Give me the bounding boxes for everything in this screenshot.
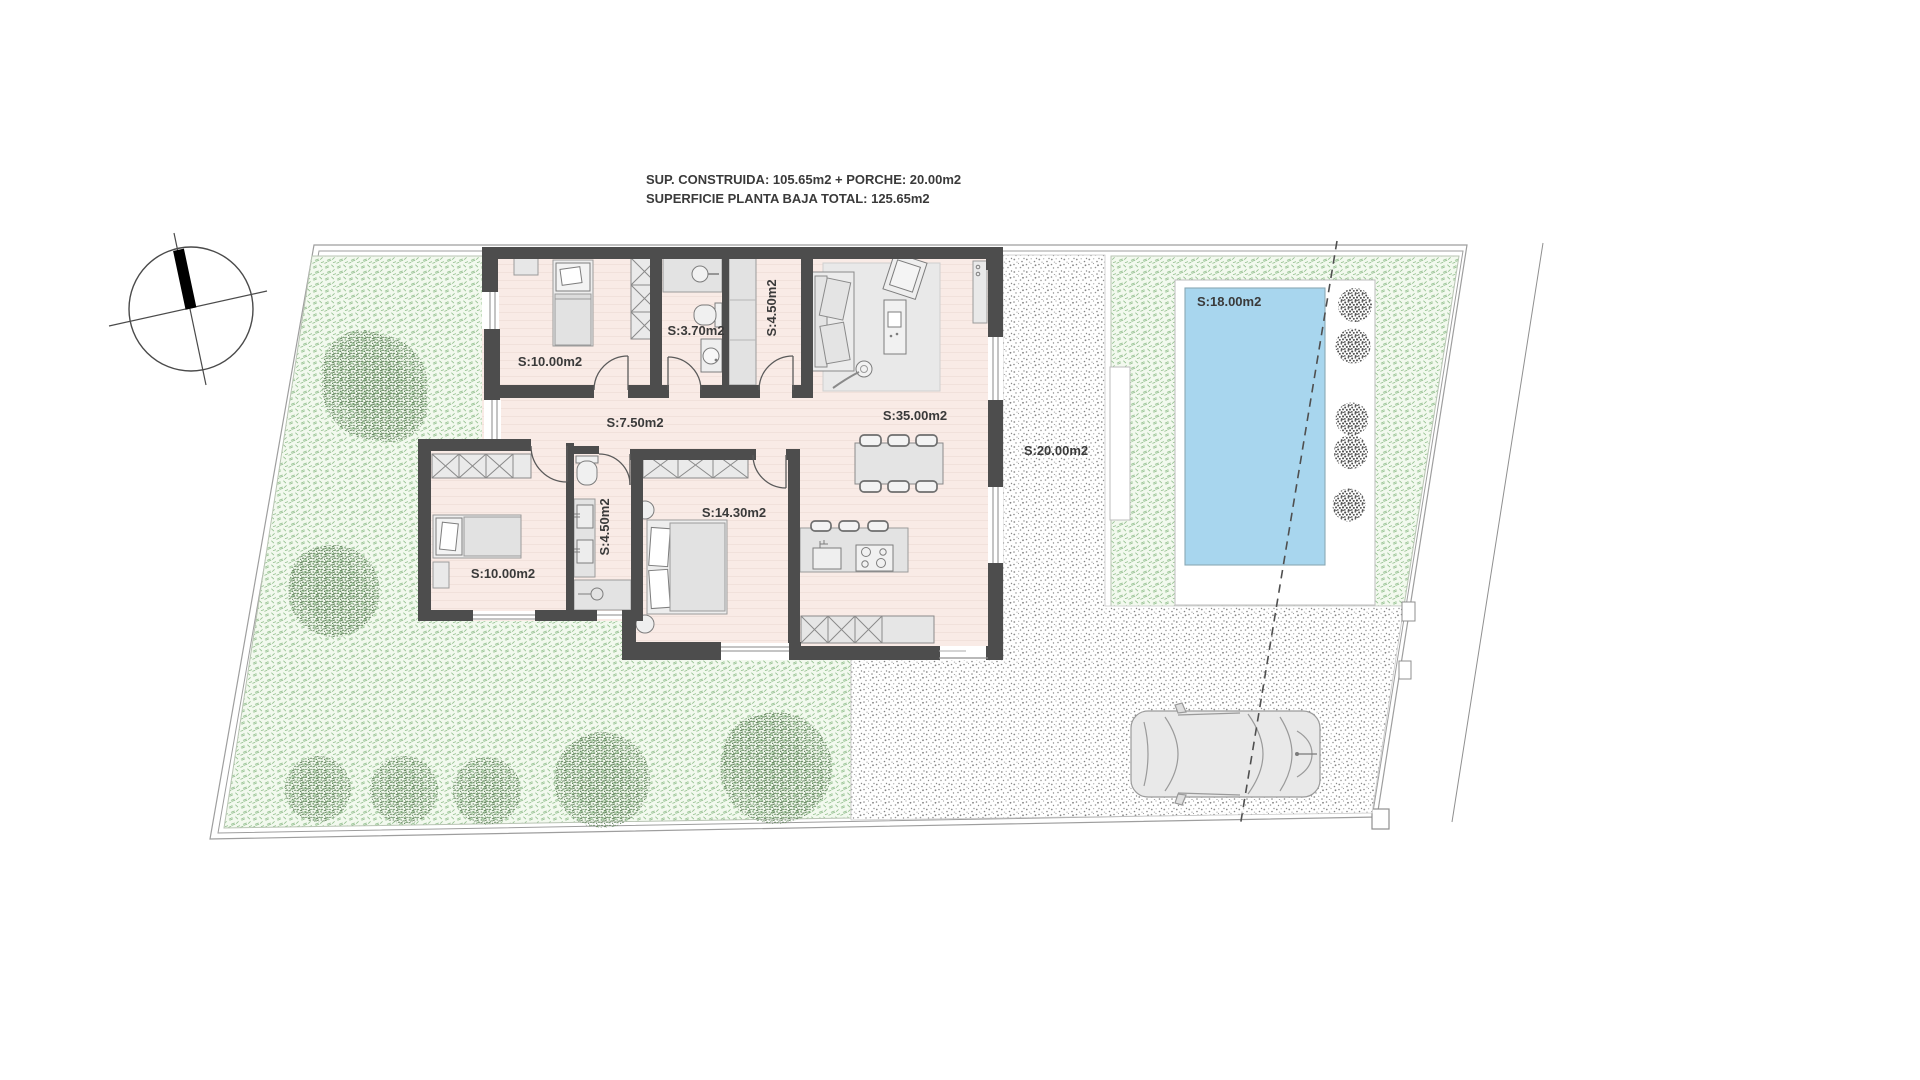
svg-text:S:18.00m2: S:18.00m2 — [1197, 294, 1261, 309]
svg-text:S:4.50m2: S:4.50m2 — [597, 498, 612, 555]
svg-text:S:3.70m2: S:3.70m2 — [667, 323, 724, 338]
svg-text:S:14.30m2: S:14.30m2 — [702, 505, 766, 520]
svg-text:SUPERFICIE PLANTA BAJA TOTAL:: SUPERFICIE PLANTA BAJA TOTAL: 125.65m2 — [646, 191, 930, 206]
svg-text:SUP. CONSTRUIDA: 105.65m2 + PO: SUP. CONSTRUIDA: 105.65m2 + PORCHE: 20.0… — [646, 172, 961, 187]
svg-text:S:20.00m2: S:20.00m2 — [1024, 443, 1088, 458]
svg-text:S:10.00m2: S:10.00m2 — [471, 566, 535, 581]
svg-text:S:7.50m2: S:7.50m2 — [606, 415, 663, 430]
svg-text:S:10.00m2: S:10.00m2 — [518, 354, 582, 369]
svg-text:S:4.50m2: S:4.50m2 — [764, 279, 779, 336]
svg-text:S:35.00m2: S:35.00m2 — [883, 408, 947, 423]
